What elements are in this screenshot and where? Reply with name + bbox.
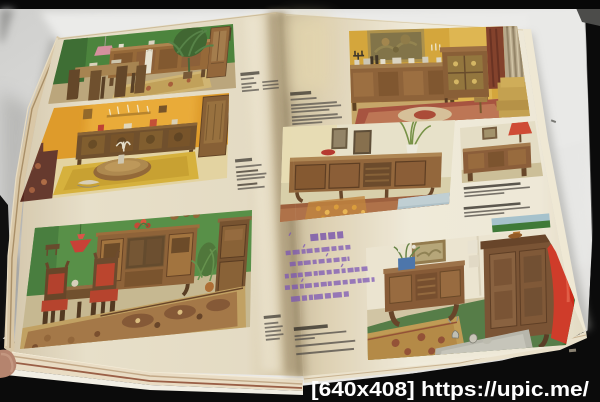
svg-text:[640x408] https://upic.me/: [640x408] https://upic.me/: [311, 378, 589, 401]
